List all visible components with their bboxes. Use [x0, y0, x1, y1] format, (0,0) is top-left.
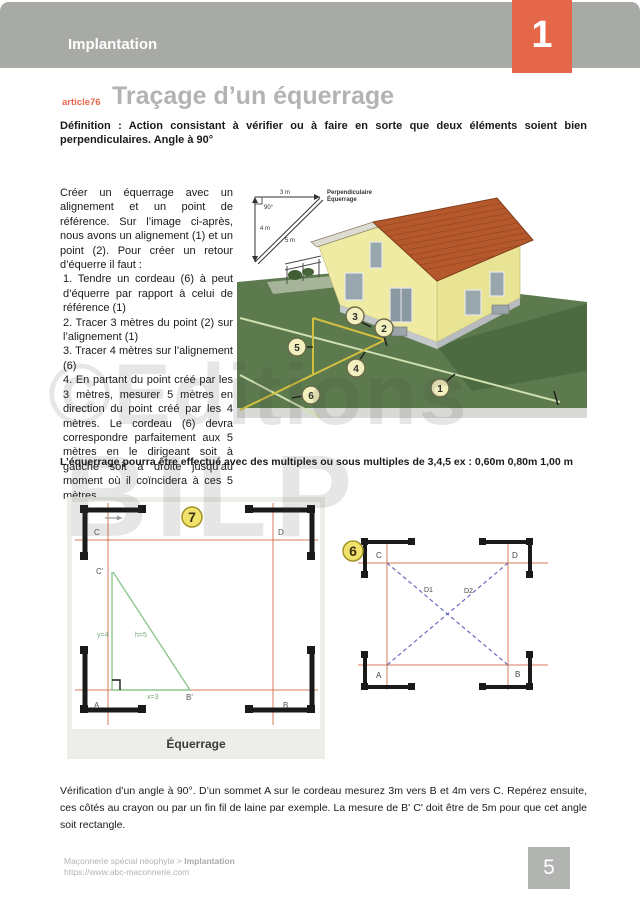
label-c-top: C	[94, 528, 100, 537]
step-4: 4. En partant du point créé par les 3 mè…	[60, 373, 233, 503]
section-title: Implantation	[68, 36, 157, 53]
marker-6: 6	[308, 391, 314, 402]
figure-6-svg: C D A B D1 D2 6	[340, 530, 570, 700]
marker-3: 3	[352, 312, 358, 323]
bush	[302, 268, 314, 276]
breadcrumb-section: Implantation	[184, 856, 235, 866]
inset-3m-label: 3 m	[280, 190, 290, 196]
inset-4m-label: 4 m	[260, 226, 270, 232]
figure-caption: Équerrage	[67, 737, 325, 751]
chapter-number-box: 1	[512, 0, 572, 73]
step-2: 2. Tracer 3 mètres du point (2) sur l’al…	[60, 316, 233, 345]
inset-caption-line1: Perpendiculaire	[327, 190, 373, 196]
figure-6-badge-number: 6	[349, 543, 357, 559]
footer: Maçonnerie spécial néophyte > Implantati…	[64, 856, 235, 878]
inset-90-label: 90°	[264, 205, 274, 211]
label-d: D	[512, 551, 518, 560]
figure-7-badge-number: 7	[188, 509, 196, 525]
multiples-note: L’équerrage pourra être effectué avec de…	[60, 455, 587, 470]
body-paragraph: Créer un équerrage avec un alignement et…	[60, 186, 233, 272]
figure-7-svg: C D C' A B B' y=4 h=5 x=3 7	[67, 497, 325, 729]
step-3: 3. Tracer 4 mètres sur l’alignement (6)	[60, 344, 233, 373]
marker-4: 4	[353, 364, 359, 375]
label-d2: D2	[464, 588, 473, 595]
marker-2: 2	[381, 324, 387, 335]
label-d-top: D	[278, 528, 284, 537]
figure-6-diagonals	[387, 563, 508, 665]
page-number-box: 5	[528, 847, 570, 889]
step-1: 1. Tendre un cordeau (6) à peut d’équerr…	[60, 272, 233, 315]
document-page: Implantation 1 article76 Traçage d’un éq…	[0, 0, 640, 906]
marker-1: 1	[437, 384, 443, 395]
page-title: Traçage d’un équerrage	[112, 82, 394, 111]
article-tag: article76	[62, 97, 101, 108]
inset-5m-label: 5 m	[285, 238, 295, 244]
bush	[288, 270, 302, 280]
label-d1: D1	[424, 587, 433, 594]
figure-6-box: C D A B D1 D2 6	[340, 530, 570, 700]
label-y4: y=4	[97, 632, 109, 639]
label-b-prime: B'	[186, 693, 193, 702]
marker-5: 5	[294, 343, 300, 354]
label-b: B	[283, 701, 288, 710]
chapter-number: 1	[512, 14, 572, 57]
label-c: C	[376, 551, 382, 560]
figure-7-box: C D C' A B B' y=4 h=5 x=3 7 Équerrage	[67, 497, 325, 759]
label-a: A	[376, 671, 382, 680]
breadcrumb: Maçonnerie spécial néophyte > Implantati…	[64, 856, 235, 867]
inset-caption-line2: Équerrage	[327, 195, 357, 203]
figure-6-red-lines	[358, 540, 548, 690]
label-a: A	[94, 701, 100, 710]
road-strip	[237, 408, 587, 418]
house-illustration: 3 2 5 4 6 1 3	[237, 186, 587, 418]
label-b: B	[515, 670, 520, 679]
breadcrumb-prefix: Maçonnerie spécial néophyte >	[64, 856, 184, 866]
label-h5: h=5	[135, 632, 147, 639]
figure-6-labels: C D A B D1 D2	[376, 551, 520, 680]
label-x3: x=3	[147, 694, 159, 701]
definition-paragraph: Définition : Action consistant à vérifie…	[60, 119, 587, 147]
verification-paragraph: Vérification d’un angle à 90°. D’un somm…	[60, 783, 587, 834]
page-number: 5	[528, 856, 570, 880]
footer-url[interactable]: https://www.abc-maconnerie.com	[64, 867, 235, 878]
label-c-prime: C'	[96, 567, 104, 576]
house-illustration-svg: 3 2 5 4 6 1 3	[237, 186, 587, 418]
